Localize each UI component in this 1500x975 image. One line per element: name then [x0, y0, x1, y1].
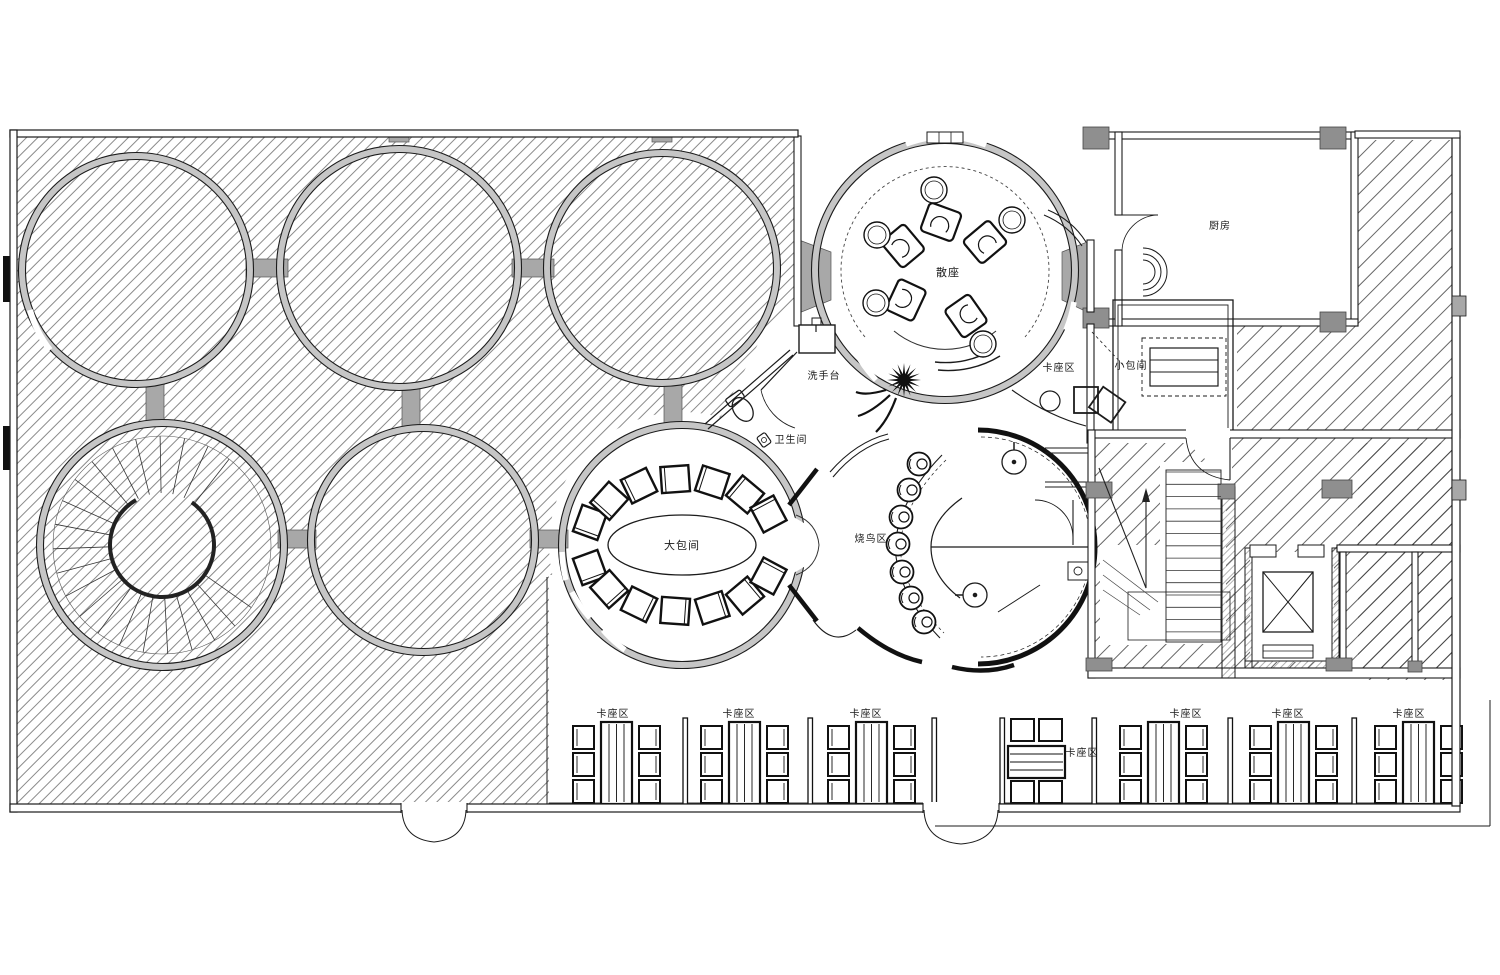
- label-booth-area-6: 卡座区: [1272, 707, 1305, 720]
- entry-door-right: [923, 802, 999, 844]
- label-wash-station: 洗手台: [808, 369, 841, 382]
- label-grill-bar: 烧鸟区: [855, 532, 888, 545]
- label-booth-area-4: 卡座区: [1066, 746, 1099, 759]
- hatched-area-right: [1095, 140, 1458, 680]
- booth-seating: [549, 718, 1462, 804]
- label-open-seating: 散座: [936, 265, 960, 279]
- label-large-private-room: 大包间: [664, 538, 700, 552]
- label-booth-area-1: 卡座区: [597, 707, 630, 720]
- floor-plan: 大包间 散座 烧鸟区 洗手台 卫生间 卡座区 小包间 厨房 卡座区 卡座区 卡座…: [0, 0, 1500, 975]
- label-kitchen: 厨房: [1209, 219, 1231, 232]
- floor-plan-page: 大包间 散座 烧鸟区 洗手台 卫生间 卡座区 小包间 厨房 卡座区 卡座区 卡座…: [0, 0, 1500, 975]
- grill-bar: [813, 430, 1095, 671]
- label-booth-area-5: 卡座区: [1170, 707, 1203, 720]
- label-booth-area-3: 卡座区: [850, 707, 883, 720]
- label-small-private-room: 小包间: [1115, 359, 1148, 372]
- label-restroom: 卫生间: [775, 433, 808, 446]
- label-booth-area-2: 卡座区: [723, 707, 756, 720]
- label-booth-area-mid: 卡座区: [1043, 361, 1076, 374]
- label-booth-area-7: 卡座区: [1393, 707, 1426, 720]
- entry-door-left: [401, 802, 467, 842]
- hatched-area-left: [16, 136, 815, 807]
